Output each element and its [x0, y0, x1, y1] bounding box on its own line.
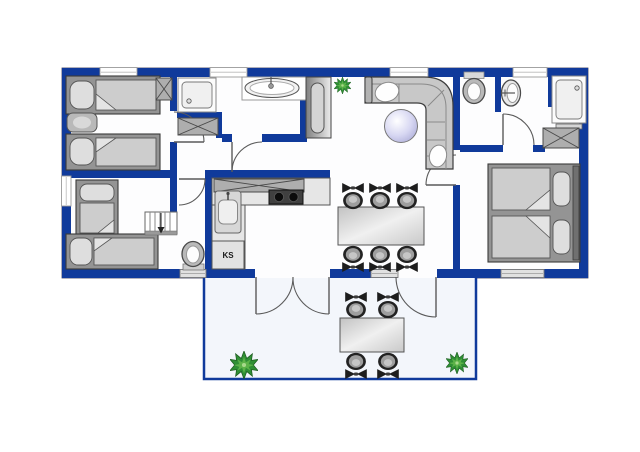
- window-gray: [501, 270, 544, 278]
- sink-icon: [215, 191, 241, 233]
- stove-icon: [269, 190, 303, 204]
- wall-kitchen-top: [212, 170, 330, 178]
- chair-icon: [377, 353, 399, 379]
- double-bed-icon: [488, 164, 580, 262]
- toilet-icon: [463, 79, 485, 104]
- window: [513, 68, 547, 78]
- wc-toilet: [182, 242, 204, 271]
- bed-icon: [66, 76, 160, 114]
- bathtub-icon: [242, 77, 306, 100]
- shower-icon: [178, 78, 216, 112]
- wall-bedroom3-left: [453, 185, 460, 269]
- chair-icon: [345, 292, 367, 318]
- chair-icon: [342, 183, 364, 209]
- dining-table: [338, 207, 424, 245]
- fridge-label: KS: [222, 251, 234, 260]
- chair-icon: [396, 183, 418, 209]
- stairs-icon: [145, 212, 177, 235]
- wall-living-right-upper: [453, 77, 460, 150]
- round-side-table: [385, 110, 418, 143]
- wall-wc-stub: [495, 77, 501, 112]
- floor-plan-page: KS: [0, 0, 640, 452]
- chair-icon: [377, 292, 399, 318]
- washbasin-icon: [501, 80, 521, 106]
- chair-icon: [342, 246, 364, 272]
- shower-icon: [552, 76, 586, 123]
- bed-icon: [66, 134, 160, 170]
- window: [390, 68, 428, 78]
- wall-bedroom2-right: [170, 178, 177, 212]
- wardrobe-x-icon: [178, 118, 218, 135]
- window-gray: [180, 270, 206, 278]
- fridge-icon: KS: [212, 241, 244, 269]
- toilet-icon: [182, 242, 204, 267]
- bed-icon: [76, 180, 118, 237]
- chair-icon: [369, 183, 391, 209]
- chair-icon: [345, 353, 367, 379]
- window-gray: [371, 270, 398, 278]
- tall-cabinet: [306, 77, 331, 138]
- wall-washroom-bottom: [460, 145, 503, 152]
- dining-set: [338, 183, 424, 272]
- nightstand: [67, 113, 97, 132]
- chair-icon: [396, 246, 418, 272]
- wardrobe-x-icon: [543, 128, 579, 148]
- window: [62, 176, 72, 206]
- terrace-table: [340, 318, 404, 352]
- wall-shower-niche: [177, 112, 222, 118]
- chair-icon: [369, 246, 391, 272]
- floor-plan-drawing: KS: [0, 0, 640, 452]
- wardrobe-x-icon: [156, 78, 172, 100]
- window: [210, 68, 247, 78]
- wall-kitchen-left: [205, 170, 212, 278]
- bed-icon: [66, 234, 158, 269]
- wall-bedroom-divider: [62, 170, 177, 178]
